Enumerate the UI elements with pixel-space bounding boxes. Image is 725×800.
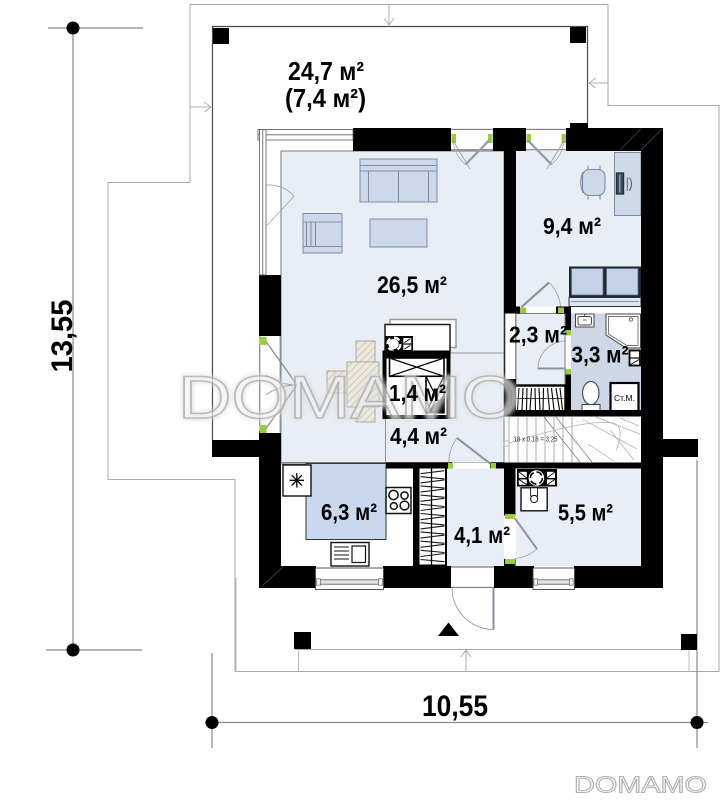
svg-text:6,3 м²: 6,3 м²: [321, 499, 377, 525]
svg-text:DOMAMO: DOMAMO: [574, 772, 707, 798]
svg-text:13,55: 13,55: [46, 300, 79, 373]
svg-text:1,4 м²: 1,4 м²: [389, 380, 446, 406]
svg-text:10,55: 10,55: [422, 690, 488, 723]
svg-text:5,5 м²: 5,5 м²: [558, 500, 613, 526]
svg-text:9,4 м²: 9,4 м²: [543, 213, 601, 239]
svg-text:DOMAMO: DOMAMO: [178, 364, 519, 431]
svg-text:2,3 м²: 2,3 м²: [509, 322, 567, 348]
svg-text:26,5 м²: 26,5 м²: [377, 272, 447, 299]
svg-text:18 x 0,18 = 3,25: 18 x 0,18 = 3,25: [514, 437, 558, 444]
svg-text:24,7 м²: 24,7 м²: [288, 56, 364, 86]
svg-text:4,4 м²: 4,4 м²: [390, 423, 447, 449]
svg-text:(7,4 м²): (7,4 м²): [285, 83, 366, 113]
svg-text:3,3 м²: 3,3 м²: [572, 342, 629, 368]
svg-text:Ст.М.: Ст.М.: [614, 393, 635, 403]
svg-text:4,1 м²: 4,1 м²: [454, 522, 510, 548]
